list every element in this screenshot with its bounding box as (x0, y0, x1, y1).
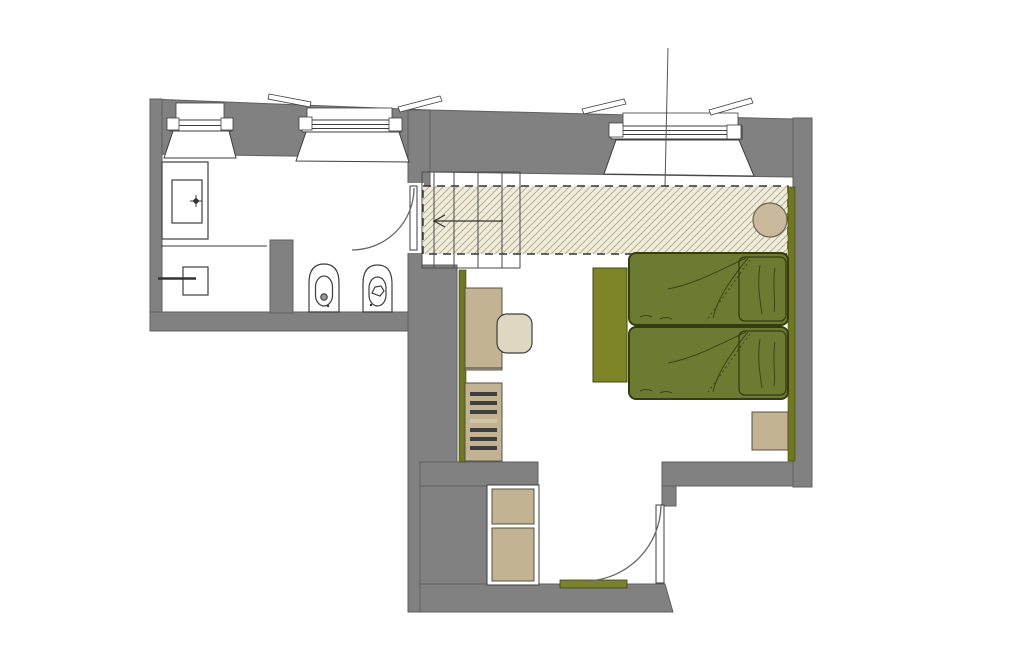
window-frame (611, 126, 742, 139)
wall-side-panel (788, 187, 795, 461)
bathroom-left-wall (150, 99, 162, 331)
pillow (739, 331, 786, 395)
bedroom-right-wall (793, 118, 812, 487)
corridor-bottom-wall (420, 584, 673, 612)
window-frame-block (221, 118, 233, 130)
bedroom-bottom-wall (662, 462, 812, 486)
connection-box (183, 267, 208, 295)
doormat (560, 580, 627, 588)
bidet (309, 264, 339, 312)
floor-plan-drawing (0, 0, 1019, 660)
bidet-drain (321, 294, 327, 300)
radiator-slat (470, 392, 497, 396)
radiator-slat (470, 401, 497, 405)
window-splay (164, 131, 236, 158)
window-frame-block (609, 123, 623, 137)
round-table (753, 203, 787, 237)
toilet (363, 265, 392, 312)
pillow (739, 257, 786, 321)
bidet-bowl (316, 276, 333, 306)
window-frame-block (389, 118, 402, 131)
sink-vanity (162, 162, 208, 239)
bathroom-bottom-wall (150, 312, 420, 331)
radiator-slat (470, 446, 497, 450)
desk-unit (459, 270, 532, 462)
radiator-slat (470, 428, 497, 432)
window-frame-block (727, 125, 741, 139)
entry-area (487, 485, 627, 588)
wardrobe-upper (492, 489, 534, 524)
entry-door (588, 505, 664, 583)
entry-door-jamb-stub (662, 486, 676, 506)
desk-chair (497, 314, 532, 353)
window-splay (604, 140, 754, 176)
window-splay (296, 132, 409, 162)
twin-bed-1 (629, 253, 788, 325)
twin-bed-2 (629, 327, 788, 399)
mid-wall-upper (408, 110, 430, 186)
window-outer-reveal (176, 103, 224, 120)
water-connection (158, 267, 208, 295)
radiator-slat (470, 419, 497, 423)
door-swing-arc (352, 188, 414, 250)
nightstand (752, 412, 788, 450)
bedside-bench (593, 268, 627, 382)
window-frame-block (299, 117, 312, 130)
open-shutter-icon (582, 99, 626, 114)
wardrobe-lower (492, 528, 534, 581)
window-frame-block (167, 118, 179, 130)
bathroom-partition-wall (270, 240, 293, 313)
open-shutter-icon (709, 98, 753, 115)
window-frame (302, 120, 401, 132)
door-swing-arc (588, 505, 661, 581)
corridor-top-wall (420, 462, 538, 486)
radiator-slat (470, 437, 497, 441)
radiator-slat (470, 410, 497, 414)
floor-plan-canvas (0, 0, 1019, 660)
